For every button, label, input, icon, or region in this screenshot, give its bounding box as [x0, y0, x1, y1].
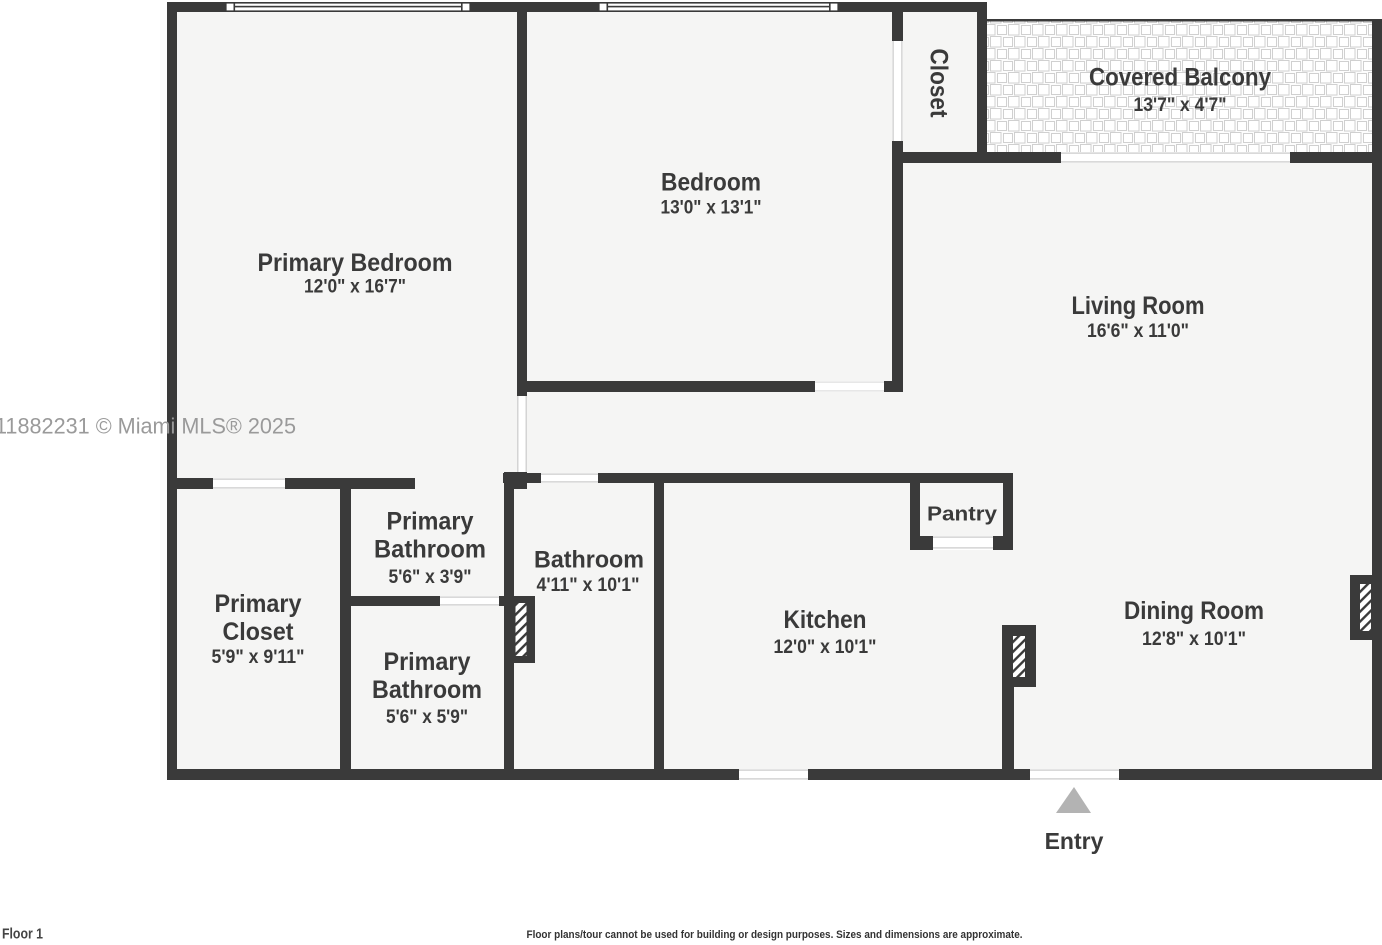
svg-text:5'6" x 5'9": 5'6" x 5'9": [386, 706, 468, 728]
svg-text:Dining Room: Dining Room: [1124, 597, 1264, 625]
svg-text:Bathroom: Bathroom: [374, 536, 486, 564]
svg-text:13'0" x 13'1": 13'0" x 13'1": [661, 197, 762, 219]
svg-text:Floor 1: Floor 1: [2, 926, 43, 943]
svg-text:Living Room: Living Room: [1072, 292, 1205, 320]
svg-text:12'8" x 10'1": 12'8" x 10'1": [1142, 628, 1246, 650]
svg-text:Entry: Entry: [1045, 828, 1104, 854]
svg-text:11882231 © Miami MLS® 2025: 11882231 © Miami MLS® 2025: [0, 414, 296, 439]
svg-text:12'0" x 10'1": 12'0" x 10'1": [774, 636, 877, 658]
svg-text:16'6" x 11'0": 16'6" x 11'0": [1087, 320, 1189, 342]
svg-text:Bathroom: Bathroom: [534, 547, 644, 574]
svg-text:Primary: Primary: [384, 648, 471, 676]
svg-text:Closet: Closet: [925, 49, 953, 119]
svg-text:Bedroom: Bedroom: [661, 169, 761, 197]
svg-text:13'7" x 4'7": 13'7" x 4'7": [1134, 94, 1227, 116]
svg-text:Kitchen: Kitchen: [784, 606, 867, 634]
svg-text:Closet: Closet: [223, 618, 295, 646]
svg-text:Floor plans/tour cannot be use: Floor plans/tour cannot be used for buil…: [527, 929, 1023, 941]
svg-text:Pantry: Pantry: [927, 503, 998, 526]
svg-text:Bathroom: Bathroom: [372, 676, 482, 704]
svg-text:Primary: Primary: [215, 590, 302, 618]
svg-text:Covered Balcony: Covered Balcony: [1089, 64, 1271, 92]
svg-text:4'11" x 10'1": 4'11" x 10'1": [537, 574, 640, 596]
svg-text:Primary: Primary: [387, 508, 474, 536]
svg-text:5'6" x 3'9": 5'6" x 3'9": [389, 566, 472, 588]
svg-text:5'9" x 9'11": 5'9" x 9'11": [212, 646, 305, 668]
svg-text:Primary Bedroom: Primary Bedroom: [258, 249, 453, 277]
svg-text:12'0" x 16'7": 12'0" x 16'7": [304, 276, 406, 298]
